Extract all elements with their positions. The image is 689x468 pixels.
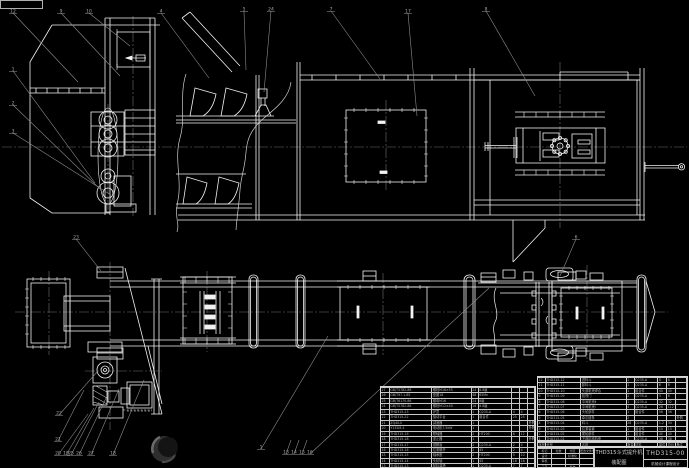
drawing-number-cell: THD315-00 机械设计课程设计 [644, 448, 687, 468]
balloon-number: 23 [73, 235, 79, 241]
leader-line [76, 239, 101, 271]
bom-table-right: 12THD315-12进料斗1Q235-A8811THD315-11卸料斗1Q2… [537, 376, 688, 441]
bom-cell: THD315-13 [390, 463, 432, 468]
balloon-number: 2 [12, 101, 15, 107]
balloon-number: 1 [12, 67, 15, 73]
leader-line [560, 239, 576, 276]
bom-cell [528, 463, 535, 468]
organization: 机械设计课程设计 [644, 459, 687, 468]
balloon-number: 17 [405, 9, 411, 15]
bom-cell: 卸料溜槽 [432, 463, 471, 468]
balloon-number: 21 [55, 437, 61, 443]
bom-cell: 7 [520, 463, 528, 468]
leader-line [408, 13, 417, 116]
leader-line [486, 11, 535, 96]
balloon-number: 7 [330, 7, 333, 13]
balloon-number: 16 [307, 450, 313, 456]
balloon-number: 12 [10, 9, 16, 15]
elevation-view [30, 12, 685, 262]
leader-line [61, 13, 120, 76]
bom-cell: 1 [472, 463, 479, 468]
leader-line [261, 336, 328, 449]
sig-cell: 批准 [566, 464, 580, 468]
balloon-number: 26 [76, 451, 82, 457]
leader-line [13, 13, 78, 82]
drawing-number: THD315-00 [644, 448, 687, 459]
balloon-number: 20 [55, 451, 61, 457]
drawing-sheet: 1291045247178123232221201925262718113141… [0, 0, 689, 468]
balloon-number: 4 [160, 9, 163, 15]
leader-line [66, 408, 94, 455]
title-block: 标记处数分区更改文件号设计标准化审核工艺批准 THD315斗式提升机 装配图 T… [537, 447, 688, 468]
balloon-number: 8 [485, 7, 488, 13]
leader-line [59, 372, 97, 415]
bom-cell: 13 [381, 463, 390, 468]
balloon-number: 15 [299, 450, 305, 456]
sig-cell [580, 464, 594, 468]
leader-line [331, 11, 380, 79]
balloon-number: 13 [283, 450, 289, 456]
bom-cell: 7 [512, 463, 520, 468]
bom-table-left: 27GB/T5782-86螺栓M16×55248.8级26GB/T97.1-85… [380, 386, 536, 468]
watermark-blob [151, 436, 178, 462]
bom-cell: Q235-A [479, 463, 513, 468]
product-title: THD315斗式提升机 [595, 448, 643, 459]
balloon-number: 25 [68, 451, 74, 457]
balloon-number: 10 [86, 9, 92, 15]
balloon-number: 24 [268, 7, 274, 13]
sig-cell: 工艺 [538, 464, 552, 468]
balloon-number: 5 [243, 7, 246, 13]
leader-line [58, 414, 88, 455]
balloon-number: 6 [575, 235, 578, 241]
leader-line [244, 11, 246, 70]
balloon-number: 1 [260, 445, 263, 451]
balloon-number: 27 [88, 451, 94, 457]
leader-line [161, 13, 209, 78]
leader-line [264, 11, 271, 92]
drawing-type: 装配图 [595, 459, 643, 468]
drawing-title-cell: THD315斗式提升机 装配图 [594, 448, 644, 468]
signature-grid: 标记处数分区更改文件号设计标准化审核工艺批准 [538, 448, 594, 468]
leader-line [71, 402, 99, 455]
balloon-number: 3 [12, 129, 15, 135]
leader-line [91, 389, 119, 455]
balloon-number: 22 [56, 411, 62, 417]
sig-cell [552, 464, 566, 468]
balloon-number: 9 [60, 9, 63, 15]
sig-row: 工艺批准 [538, 464, 594, 468]
bom-row: 13THD315-13卸料溜槽1Q235-A77 [381, 463, 535, 468]
sheet-frame-corner [1, 1, 43, 9]
balloon-number: 18 [110, 451, 116, 457]
balloon-number: 14 [291, 450, 297, 456]
